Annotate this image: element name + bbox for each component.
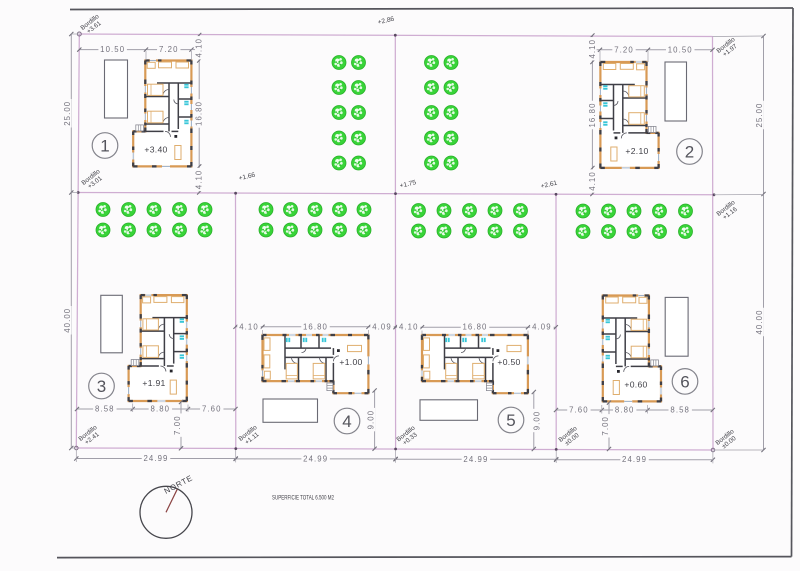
svg-text:24.99: 24.99 xyxy=(463,455,488,464)
svg-text:10.50: 10.50 xyxy=(100,45,125,54)
svg-text:9.00: 9.00 xyxy=(367,410,376,430)
svg-text:3: 3 xyxy=(97,377,106,396)
svg-text:40.00: 40.00 xyxy=(63,308,72,333)
svg-text:10.50: 10.50 xyxy=(668,45,693,54)
svg-text:16.80: 16.80 xyxy=(303,322,328,331)
svg-text:4.09: 4.09 xyxy=(372,322,392,331)
svg-text:25.00: 25.00 xyxy=(63,101,72,126)
svg-text:4.10: 4.10 xyxy=(239,322,259,331)
svg-text:+1.00: +1.00 xyxy=(339,357,362,367)
svg-text:8.80: 8.80 xyxy=(615,406,635,415)
svg-text:40.00: 40.00 xyxy=(755,309,764,334)
svg-text:+3.40: +3.40 xyxy=(144,145,167,155)
svg-text:4: 4 xyxy=(342,412,351,431)
svg-text:24.99: 24.99 xyxy=(303,454,328,463)
svg-text:4.10: 4.10 xyxy=(399,323,419,332)
svg-text:8.58: 8.58 xyxy=(95,405,115,414)
svg-text:25.00: 25.00 xyxy=(755,102,764,127)
svg-text:+0.50: +0.50 xyxy=(497,357,520,367)
svg-text:SUPERFICIE TOTAL 6.500 M2: SUPERFICIE TOTAL 6.500 M2 xyxy=(272,495,334,502)
svg-text:8.58: 8.58 xyxy=(670,406,690,415)
svg-text:9.00: 9.00 xyxy=(533,411,542,431)
svg-text:16.80: 16.80 xyxy=(462,323,487,332)
svg-text:7.00: 7.00 xyxy=(601,416,610,436)
svg-text:2: 2 xyxy=(685,143,694,162)
svg-text:+2.10: +2.10 xyxy=(625,146,648,156)
svg-text:7.60: 7.60 xyxy=(569,406,589,415)
svg-text:7.20: 7.20 xyxy=(614,45,634,54)
svg-text:16.80: 16.80 xyxy=(195,101,204,126)
svg-text:7.20: 7.20 xyxy=(159,45,179,54)
svg-text:1: 1 xyxy=(100,137,109,156)
svg-text:7.60: 7.60 xyxy=(202,405,222,414)
svg-text:24.99: 24.99 xyxy=(622,455,647,464)
svg-text:7.00: 7.00 xyxy=(173,415,182,435)
svg-text:6: 6 xyxy=(680,372,689,391)
svg-text:4.10: 4.10 xyxy=(195,170,204,190)
svg-text:4.10: 4.10 xyxy=(195,38,204,58)
svg-text:4.10: 4.10 xyxy=(588,39,597,59)
svg-text:+0.60: +0.60 xyxy=(624,380,647,390)
svg-text:24.99: 24.99 xyxy=(143,454,168,463)
svg-text:16.80: 16.80 xyxy=(588,102,597,127)
svg-text:5: 5 xyxy=(506,411,515,430)
svg-text:4.10: 4.10 xyxy=(588,171,597,191)
svg-text:4.09: 4.09 xyxy=(532,323,552,332)
svg-text:+1.91: +1.91 xyxy=(142,378,165,388)
svg-text:8.80: 8.80 xyxy=(151,405,171,414)
